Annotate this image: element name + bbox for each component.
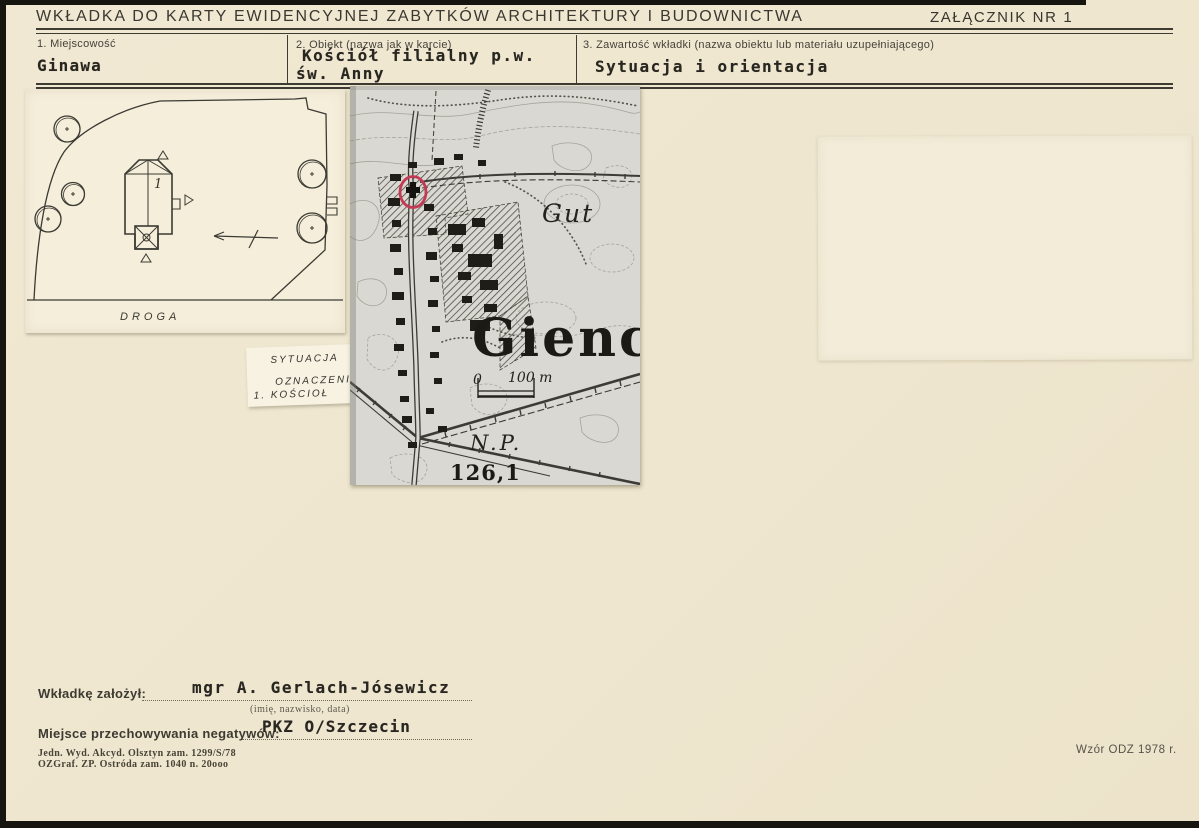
founder-hint: (imię, nazwisko, data) [250, 704, 350, 715]
field-locality-label: 1. Miejscowość [37, 38, 116, 50]
scan-edge-top [0, 0, 1086, 5]
field-object-value-line2: św. Anny [296, 64, 385, 83]
tree-symbols [35, 116, 327, 243]
header-rule-1 [36, 28, 1173, 30]
attachment-number: ZAŁĄCZNIK NR 1 [930, 9, 1073, 26]
building-number-label: 1 [154, 177, 162, 192]
scale-hundred-label: 100 m [508, 370, 552, 386]
map-estate-label: Gut [542, 199, 594, 228]
scanned-record-card: WKŁADKA DO KARTY EWIDENCYJNEJ ZABYTKÓW A… [0, 0, 1199, 828]
founder-value: mgr A. Gerlach-Jósewicz [192, 678, 450, 697]
field-contents-label: 3. Zawartość wkładki (nazwa obiektu lub … [583, 39, 934, 51]
site-plan-inset: 1 DROGA [25, 89, 345, 333]
print-imprint-line1: Jedn. Wyd. Akcyd. Olsztyn zam. 1299/S/78 [38, 748, 236, 759]
legend-sytuacja: SYTUACJA [270, 353, 339, 366]
print-imprint-line2: OZGraf. ZP. Ostróda zam. 1040 n. 20ooo [38, 759, 228, 770]
map-elevation-label: 126,1 [450, 460, 521, 485]
negatives-value: PKZ O/Szczecin [262, 717, 411, 736]
scale-zero-label: 0 [473, 372, 482, 388]
scan-edge-bottom [0, 821, 1199, 828]
legend-card: SYTUACJA OZNACZENIA 1. KOŚCIOŁ [246, 344, 353, 407]
site-plan-drawing: 1 DROGA [25, 89, 345, 333]
map-image: Gut Gienc 0 100 m N.P. 126,1 [350, 86, 640, 485]
field-object-value-line1: Kościół filialny p.w. [302, 46, 536, 65]
field-contents-value: Sytuacja i orientacja [595, 57, 829, 76]
field-separator-2 [576, 35, 577, 83]
church-plan [125, 151, 193, 262]
fields-rule-1 [36, 83, 1173, 85]
founder-label: Wkładkę założył: [38, 686, 146, 701]
map-np-label: N.P. [469, 431, 522, 455]
founder-dotted-line [142, 699, 472, 701]
negatives-dotted-line [242, 738, 472, 740]
map-edge-shade-left [350, 86, 356, 485]
road-label: DROGA [120, 311, 180, 323]
parcel-boundary-left [34, 101, 160, 300]
topographic-map: Gut Gienc 0 100 m N.P. 126,1 [350, 86, 640, 485]
field-separator-1 [287, 35, 288, 83]
gate-symbol [327, 197, 337, 215]
card-title: WKŁADKA DO KARTY EWIDENCYJNEJ ZABYTKÓW A… [36, 8, 804, 26]
north-arrow [214, 230, 278, 248]
scan-edge-left [0, 0, 6, 828]
form-code: Wzór ODZ 1978 r. [1076, 744, 1177, 756]
map-town-label: Gienc [472, 308, 640, 369]
legend-kosciol: 1. KOŚCIOŁ [253, 388, 329, 402]
map-edge-shade-top [350, 86, 640, 90]
legend-oznaczenia: OZNACZENIA [275, 374, 360, 388]
field-locality-value: Ginawa [37, 56, 102, 75]
blank-paper-patch [818, 135, 1193, 360]
header-rule-2 [36, 33, 1173, 35]
